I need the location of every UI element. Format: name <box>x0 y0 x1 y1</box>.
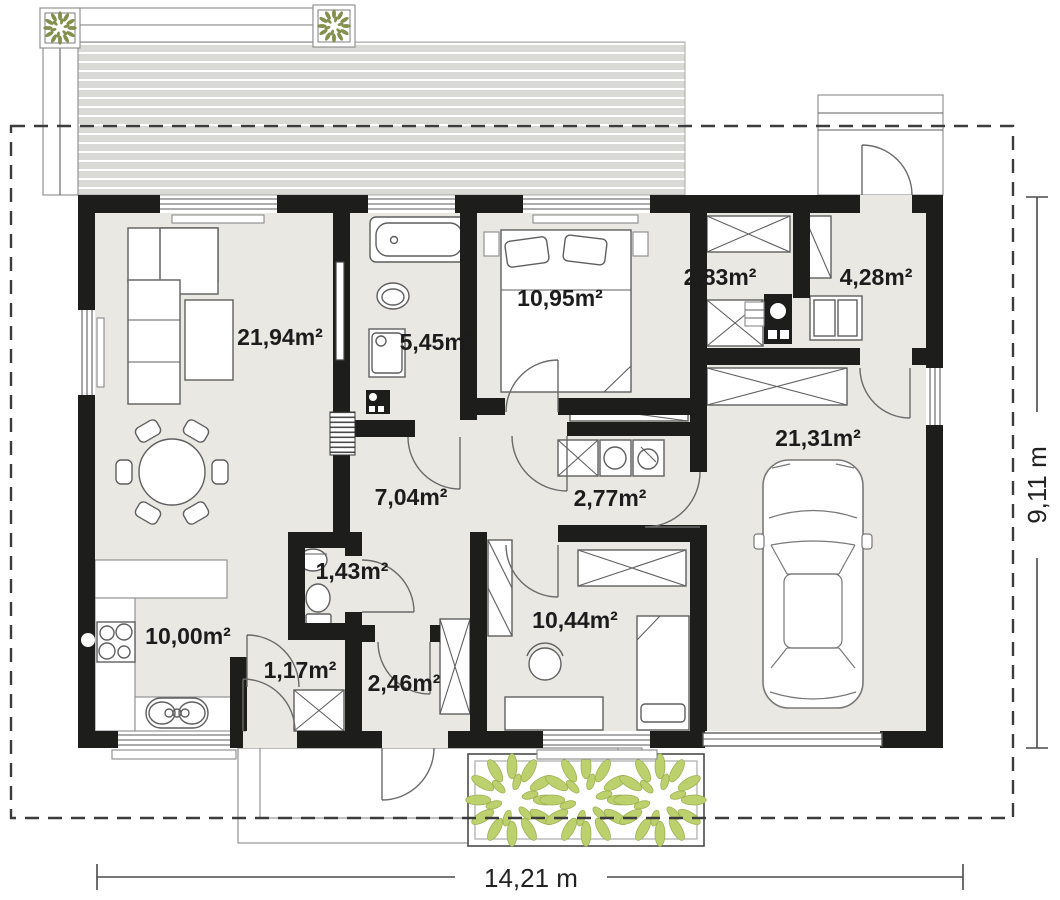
room-label-wc: 1,43m² <box>316 558 389 584</box>
entrance-porch <box>818 95 943 195</box>
room-label-living: 21,94m² <box>237 324 323 350</box>
room-label-garage: 21,31m² <box>775 425 861 451</box>
kitchen-sink <box>146 698 208 728</box>
room-label-kitchen: 10,00m² <box>145 623 231 649</box>
desk-chair <box>527 643 563 680</box>
floor-plan-page: 14,21 m 9,11 m 21,94m² 5,45m² 10,95m² 2,… <box>0 0 1060 900</box>
chimney-block <box>366 390 390 414</box>
tv <box>336 262 344 360</box>
garage-shelf <box>707 368 847 405</box>
terrace-deck <box>78 42 685 195</box>
room-label-bedroom-top: 10,95m² <box>517 285 603 311</box>
room-label-storage: 2,83m² <box>684 264 757 290</box>
room-label-back-corridor: 2,46m² <box>368 670 441 696</box>
vent-shaft <box>330 412 355 455</box>
dimension-height-label: 9,11 m <box>1022 446 1052 524</box>
room-label-bedroom-bottom: 10,44m² <box>532 607 618 633</box>
desk <box>505 697 603 730</box>
bed-double <box>484 230 648 392</box>
door-threshold <box>860 195 912 213</box>
cooktop <box>97 622 135 662</box>
washbasin <box>377 283 409 309</box>
room-label-hall: 7,04m² <box>375 484 448 510</box>
bed-single <box>637 616 689 730</box>
room-label-bathroom: 5,45m² <box>400 329 473 355</box>
planter-box <box>40 8 80 48</box>
floor-plan: 14,21 m 9,11 m 21,94m² 5,45m² 10,95m² 2,… <box>0 0 1060 900</box>
room-label-utility-corridor: 2,77m² <box>574 485 647 511</box>
dimension-height: 9,11 m <box>1020 197 1056 748</box>
garage-door <box>703 733 882 746</box>
room-label-vestibule: 4,28m² <box>840 264 913 290</box>
coffee-table <box>185 300 233 380</box>
planter-box <box>313 5 355 47</box>
dimension-width: 14,21 m <box>97 858 963 893</box>
wall-vent-icon <box>81 633 95 647</box>
toilet <box>306 584 331 624</box>
utility-appliances <box>558 440 664 476</box>
room-label-back-hall: 1,17m² <box>264 657 337 683</box>
vestibule-bench <box>810 296 862 340</box>
bathtub <box>370 217 468 262</box>
dimension-width-label: 14,21 m <box>484 863 578 893</box>
car <box>754 460 872 708</box>
flower-bed <box>466 754 707 847</box>
door-threshold <box>382 731 448 748</box>
door-threshold <box>243 731 297 748</box>
